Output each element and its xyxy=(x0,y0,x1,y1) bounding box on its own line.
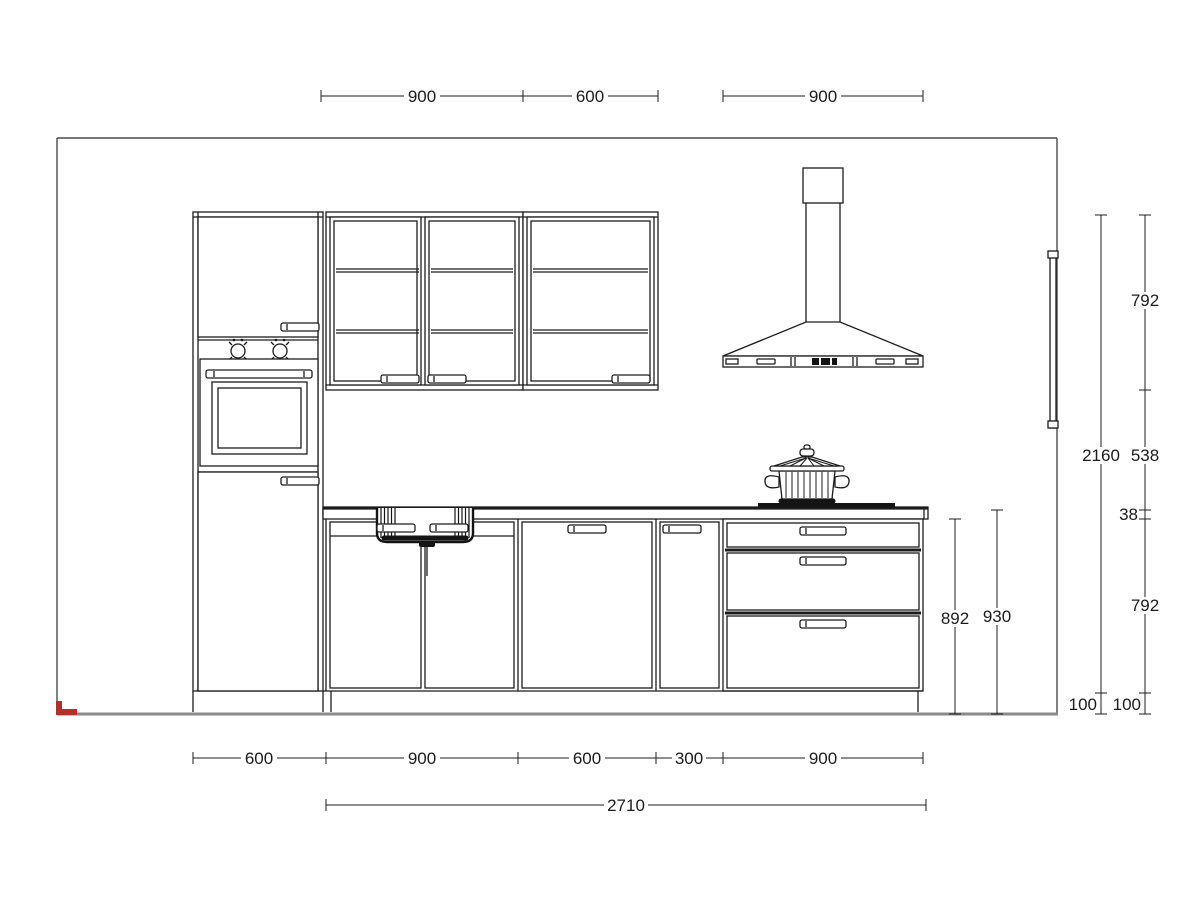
dim-right-plinth-segment: 100 xyxy=(1113,695,1141,714)
sink-door-handle xyxy=(430,524,468,532)
pot-handle-left xyxy=(765,476,779,488)
hood-control-button xyxy=(832,358,837,365)
dim-base-with-plinth: 892 xyxy=(941,609,969,628)
drawer-handle xyxy=(800,527,846,535)
dim-bottom-narrow-unit: 300 xyxy=(675,749,703,768)
base-cabinet-600 xyxy=(522,522,652,688)
drawer-handle xyxy=(800,620,846,628)
pot-handle-right xyxy=(835,476,849,488)
built-in-oven xyxy=(200,359,318,466)
dimension-labels: 900 600 900 600 900 600 300 900 2710 216… xyxy=(245,87,1159,815)
dim-top-hood: 900 xyxy=(809,87,837,106)
dim-right-base-cabinet-height: 792 xyxy=(1131,596,1159,615)
dim-right-wall-cabinet-height: 792 xyxy=(1131,291,1159,310)
upper-door-handle xyxy=(281,323,319,331)
tall-cabinet-upper-door xyxy=(198,217,318,337)
hood-control-button xyxy=(821,358,830,365)
dimension-lines xyxy=(193,90,1151,811)
dim-right-splashback-gap: 538 xyxy=(1131,446,1159,465)
wall-cabinet-900 xyxy=(326,212,523,390)
wall-door-handle xyxy=(428,375,466,383)
panel-body xyxy=(1050,252,1056,428)
dim-top-wall-cabinet-a: 900 xyxy=(408,87,436,106)
pot-lid-knob-top xyxy=(804,445,810,449)
sink-drain xyxy=(419,541,435,547)
dim-bottom-sink-unit: 900 xyxy=(408,749,436,768)
base-door-300 xyxy=(660,522,719,688)
tall-oven-cabinet xyxy=(193,212,323,712)
glass-door-left xyxy=(330,217,421,385)
panel-bottom-cap xyxy=(1048,421,1058,428)
sink-door-left xyxy=(330,522,421,688)
cooktop-strip xyxy=(758,503,895,508)
oven-door-handle xyxy=(206,370,312,378)
pot-lid-knob xyxy=(800,449,814,456)
panel-top-cap xyxy=(1048,251,1058,258)
dim-right-plinth-total: 100 xyxy=(1069,695,1097,714)
dim-bottom-tall-unit: 600 xyxy=(245,749,273,768)
dim-right-worktop-thickness: 38 xyxy=(1119,505,1138,524)
oven-window-glass xyxy=(218,388,301,448)
pot-lid-rim xyxy=(770,466,844,471)
base-door-handle xyxy=(568,525,606,533)
dim-bottom-door-unit: 600 xyxy=(573,749,601,768)
base-door-600 xyxy=(522,522,652,688)
plinth xyxy=(323,691,923,712)
sink-door-handle xyxy=(377,524,415,532)
sink-door-right xyxy=(425,522,514,688)
hood-duct-cap xyxy=(803,168,843,203)
kitchen-elevation-drawing: 900 600 900 600 900 600 300 900 2710 216… xyxy=(0,0,1200,900)
hood-canopy xyxy=(723,322,923,356)
lower-door-handle xyxy=(281,477,319,485)
dimension-label-masks xyxy=(241,88,1166,813)
wall-door-handle xyxy=(612,375,650,383)
dim-top-wall-cabinet-b: 600 xyxy=(576,87,604,106)
glass-door-right xyxy=(425,217,519,385)
wall-mounted-panel xyxy=(1048,251,1058,428)
dim-right-total-height: 2160 xyxy=(1082,446,1120,465)
dim-worktop-level: 930 xyxy=(983,607,1011,626)
tall-cabinet-lower-door xyxy=(198,472,318,691)
wall-door-handle xyxy=(381,375,419,383)
hood-control-button xyxy=(812,358,819,365)
dim-bottom-run-total: 2710 xyxy=(607,796,645,815)
red-corner-marker-vertical xyxy=(56,701,62,715)
base-door-handle xyxy=(663,525,701,533)
drawer-handle xyxy=(800,557,846,565)
glass-door xyxy=(527,217,654,385)
pot-body xyxy=(779,471,835,499)
range-hood xyxy=(723,168,923,367)
dim-bottom-drawer-unit: 900 xyxy=(809,749,837,768)
drawer-base-unit-900 xyxy=(723,519,923,691)
base-cabinet-300 xyxy=(656,519,719,691)
wall-cabinet-600 xyxy=(523,212,658,390)
cooking-pot xyxy=(765,445,849,501)
kitchen-elevation-sheet: 900 600 900 600 900 600 300 900 2710 216… xyxy=(0,0,1200,900)
